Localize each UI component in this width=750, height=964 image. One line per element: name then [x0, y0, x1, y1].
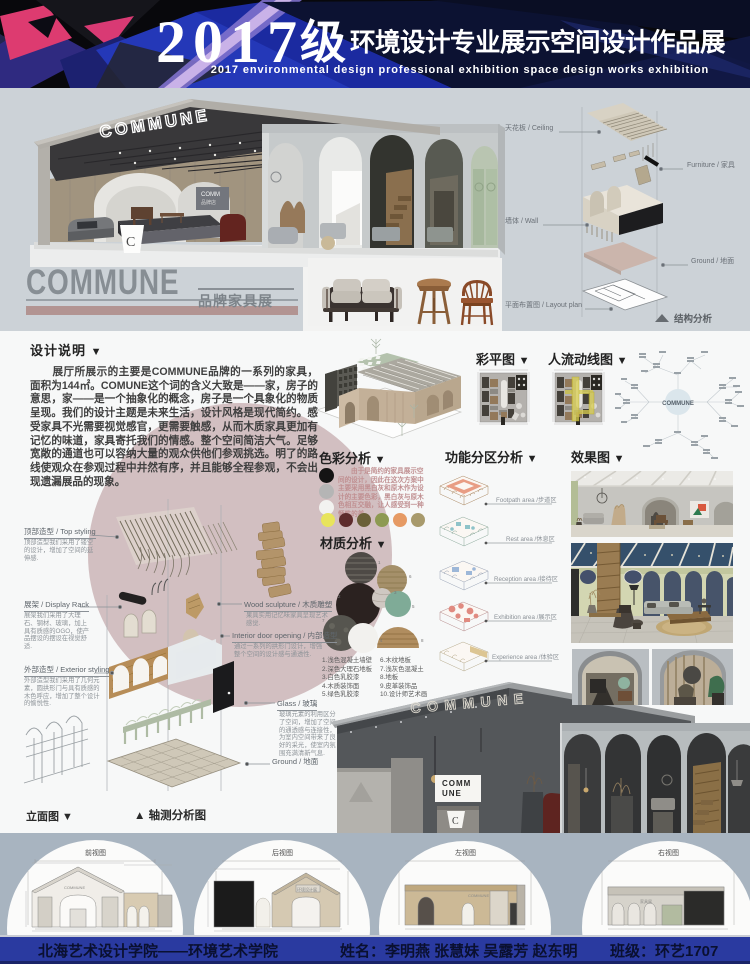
svg-text:C: C [452, 816, 459, 827]
svg-text:结构分析: 结构分析 [673, 313, 713, 325]
svg-text:UNE: UNE [442, 789, 462, 798]
svg-text:Reception area /接待区: Reception area /接待区 [494, 575, 558, 583]
svg-text:COMMUNE: COMMUNE [662, 401, 694, 407]
svg-text:天花板 / Ceiling: 天花板 / Ceiling [505, 123, 553, 132]
svg-text:后视图: 后视图 [272, 848, 293, 857]
svg-text:8: 8 [421, 638, 424, 643]
svg-text:1: 1 [378, 560, 381, 565]
svg-text:环境设计展: 环境设计展 [297, 886, 317, 892]
svg-text:Rest area /休息区: Rest area /休息区 [506, 535, 555, 543]
svg-text:Experience area /体验区: Experience area /体验区 [492, 653, 559, 661]
svg-text:平面布置图 / Layout plan: 平面布置图 / Layout plan [505, 300, 582, 309]
svg-text:左视图: 左视图 [455, 848, 476, 857]
svg-text:COMMUNE: COMMUNE [468, 893, 489, 898]
svg-text:6: 6 [409, 574, 412, 579]
svg-text:C: C [126, 235, 135, 250]
svg-text:COMM: COMM [442, 779, 471, 788]
svg-text:Furniture / 家具: Furniture / 家具 [687, 160, 735, 169]
svg-text:COMM: COMM [201, 192, 220, 198]
svg-text:品牌店: 品牌店 [201, 199, 216, 206]
svg-text:家具展: 家具展 [640, 898, 652, 904]
svg-text:Ground / 地面: Ground / 地面 [691, 256, 734, 265]
svg-text:Footpath area /步道区: Footpath area /步道区 [496, 496, 557, 504]
svg-text:Exhibition area /展示区: Exhibition area /展示区 [494, 614, 557, 621]
svg-text:COMMUNE: COMMUNE [64, 885, 85, 890]
svg-text:5: 5 [412, 604, 415, 609]
svg-text:右视图: 右视图 [658, 848, 679, 857]
svg-text:墙体 / Wall: 墙体 / Wall [505, 216, 539, 225]
svg-text:前视图: 前视图 [85, 848, 106, 857]
